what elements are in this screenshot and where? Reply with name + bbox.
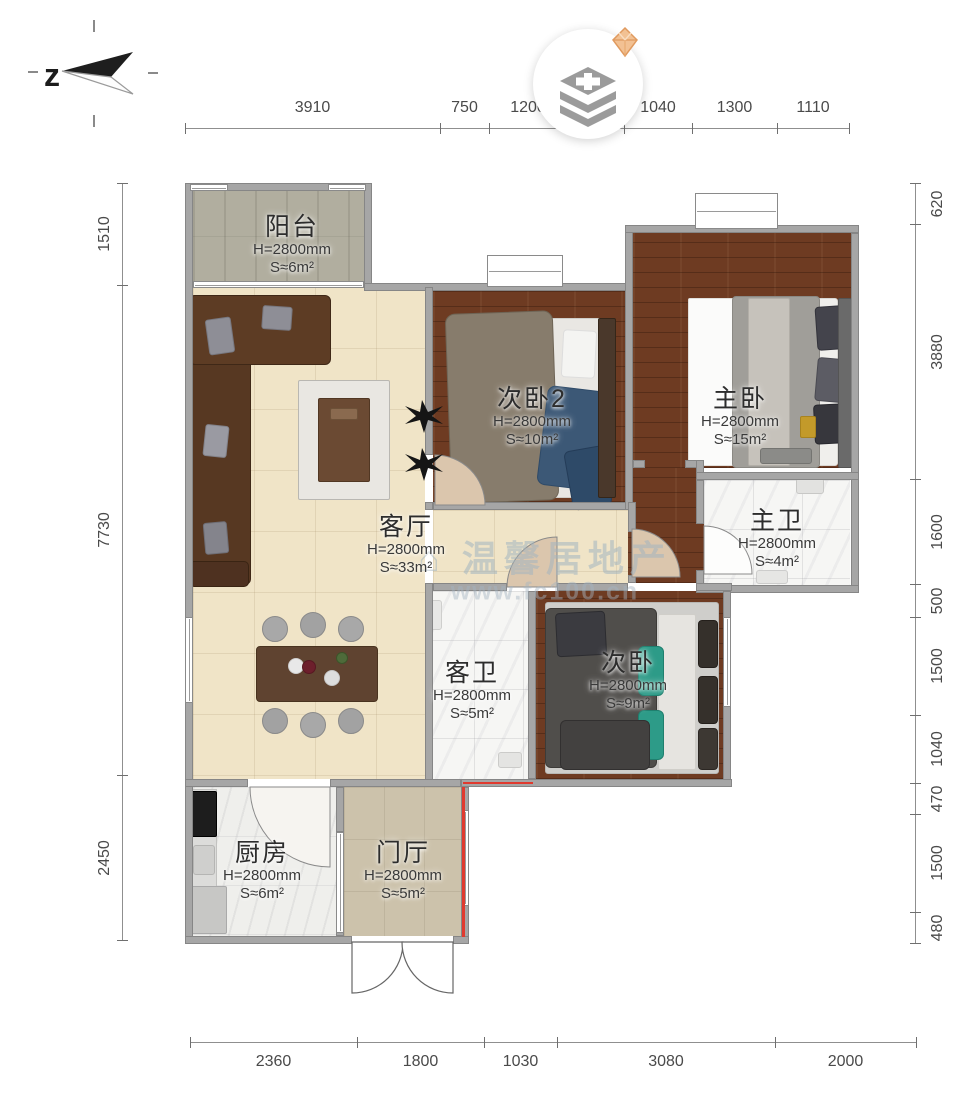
hallway-floor — [628, 468, 704, 583]
window — [328, 184, 366, 191]
dimension-label-left: 7730 — [96, 512, 114, 548]
room-label-guest-bath: 客卫H=2800mmS≈5m² — [433, 660, 511, 723]
diamond-gem-icon — [613, 28, 637, 56]
wall — [425, 502, 433, 510]
compass-letter: z — [44, 57, 60, 93]
room-label-master-bath: 主卫H=2800mmS≈4m² — [738, 508, 816, 571]
dimension-line-bottom — [190, 1042, 916, 1043]
room-label-kitchen: 厨房H=2800mmS≈6m² — [223, 840, 301, 903]
room-name: 次卧2 — [493, 386, 571, 413]
room-area: S≈15m² — [701, 431, 779, 449]
room-name: 客卫 — [433, 660, 511, 687]
dimension-label-right: 1040 — [929, 731, 947, 767]
wall — [364, 183, 372, 289]
dimension-label-top: 1300 — [717, 99, 753, 117]
room-name: 次卧 — [589, 650, 667, 677]
room-height: H=2800mm — [367, 541, 445, 559]
room-name: 门厅 — [364, 840, 442, 867]
dimension-tick — [117, 285, 128, 286]
room-area: S≈5m² — [433, 705, 511, 723]
entry-highlight-line — [462, 787, 465, 937]
room-name: 厨房 — [223, 840, 301, 867]
coffee-table-decor — [330, 408, 358, 420]
corridor-floor — [433, 510, 632, 583]
room-area: S≈4m² — [738, 553, 816, 571]
plate — [324, 670, 340, 686]
floorplan-canvas: 阳台H=2800mmS≈6m²次卧2H=2800mmS≈10m²主卧H=2800… — [0, 0, 974, 1105]
dimension-label-bottom: 3080 — [648, 1053, 684, 1071]
dining-chair — [300, 712, 326, 738]
dimension-tick — [777, 123, 778, 134]
sofa-pillow — [202, 424, 229, 458]
wall — [628, 502, 636, 532]
room-area: S≈33m² — [367, 559, 445, 577]
dimension-tick — [557, 1037, 558, 1048]
room-name: 阳台 — [253, 214, 331, 241]
window — [190, 184, 228, 191]
dimension-tick — [849, 123, 850, 134]
wall — [696, 583, 732, 591]
dining-chair — [262, 616, 288, 642]
dimension-label-right: 1500 — [929, 648, 947, 684]
wall — [433, 502, 636, 510]
room-area: S≈6m² — [253, 259, 331, 277]
dining-chair — [338, 616, 364, 642]
dimension-label-top: 3910 — [295, 99, 331, 117]
master-headboard — [838, 298, 852, 468]
dimension-tick — [692, 123, 693, 134]
wall — [433, 583, 507, 591]
dimension-tick — [910, 912, 921, 913]
room-height: H=2800mm — [738, 535, 816, 553]
bed2-headboard — [598, 318, 616, 498]
window — [487, 255, 563, 287]
dimension-tick — [910, 584, 921, 585]
room-area: S≈6m² — [223, 885, 301, 903]
room-area: S≈10m² — [493, 431, 571, 449]
window — [336, 832, 344, 933]
sofa-pillow — [205, 316, 236, 355]
wall — [453, 936, 469, 944]
dining-chair — [300, 612, 326, 638]
wall — [625, 225, 633, 510]
entrance-door-right — [402, 942, 453, 993]
dimension-label-bottom: 1030 — [503, 1053, 539, 1071]
window — [185, 617, 193, 703]
window — [193, 281, 364, 288]
kitchen-fridge — [191, 886, 227, 934]
entrance-threshold — [352, 936, 453, 946]
room-height: H=2800mm — [223, 867, 301, 885]
wall — [185, 183, 193, 944]
room-height: H=2800mm — [253, 241, 331, 259]
wall — [185, 779, 248, 787]
dimension-label-top: 1110 — [796, 99, 829, 117]
dimension-label-right: 500 — [929, 587, 947, 614]
room-label-balcony: 阳台H=2800mmS≈6m² — [253, 214, 331, 277]
dimension-tick — [117, 183, 128, 184]
room-area: S≈9m² — [589, 695, 667, 713]
dining-chair — [262, 708, 288, 734]
window — [695, 193, 778, 229]
guest-bath-toilet — [498, 752, 522, 768]
sofa-pillow — [203, 521, 230, 555]
dimension-label-bottom: 2360 — [256, 1053, 292, 1071]
dimension-tick — [910, 479, 921, 480]
dimension-tick — [910, 617, 921, 618]
wall — [696, 480, 704, 524]
room-height: H=2800mm — [433, 687, 511, 705]
dimension-line-left — [122, 183, 123, 940]
dimension-label-right: 1600 — [929, 514, 947, 550]
dimension-tick — [910, 224, 921, 225]
dimension-tick — [484, 1037, 485, 1048]
dimension-label-right: 3880 — [929, 334, 947, 370]
dimension-label-bottom: 2000 — [828, 1053, 864, 1071]
dimension-line-top — [185, 128, 849, 129]
window — [723, 617, 731, 707]
room-name: 主卧 — [701, 386, 779, 413]
dimension-tick — [357, 1037, 358, 1048]
dimension-label-right: 1500 — [929, 845, 947, 881]
dining-table — [256, 646, 378, 702]
dimension-tick — [489, 123, 490, 134]
master-bath-toilet — [796, 478, 824, 494]
dimension-tick — [775, 1037, 776, 1048]
bed2-pillow — [561, 329, 597, 379]
master-bath-sink — [756, 570, 788, 584]
room-label-master-bedroom: 主卧H=2800mmS≈15m² — [701, 386, 779, 449]
dimension-tick — [117, 940, 128, 941]
wall — [557, 583, 628, 591]
wall — [696, 472, 859, 480]
dimension-label-top: 750 — [451, 99, 478, 117]
wall — [425, 287, 433, 455]
plant-decor — [336, 652, 348, 664]
compass-icon: z — [18, 14, 188, 139]
wall — [425, 583, 433, 787]
kitchen-stove — [191, 791, 217, 837]
dimension-tick — [910, 715, 921, 716]
sofa-armrest — [189, 561, 249, 587]
room-name: 客厅 — [367, 514, 445, 541]
bed3-dark-pillow — [698, 676, 718, 724]
wall — [633, 460, 645, 468]
room-label-bedroom2: 次卧2H=2800mmS≈10m² — [493, 386, 571, 449]
layers-badge-button[interactable] — [533, 29, 643, 139]
master-bench — [760, 448, 812, 464]
bed3-dark-pillow — [698, 728, 718, 770]
dimension-label-right: 470 — [929, 785, 947, 812]
dimension-tick — [910, 783, 921, 784]
entrance-door-left — [352, 942, 403, 993]
room-name: 主卫 — [738, 508, 816, 535]
room-height: H=2800mm — [701, 413, 779, 431]
master-decor — [800, 416, 816, 438]
sofa-pillow — [261, 305, 293, 331]
wall — [185, 936, 352, 944]
bed3-dark-pillow — [698, 620, 718, 668]
bed3-blanket-end — [560, 720, 650, 770]
dining-chair — [338, 708, 364, 734]
dimension-tick — [910, 183, 921, 184]
dimension-label-top: 1040 — [640, 99, 676, 117]
dimension-label-right: 480 — [929, 914, 947, 941]
room-height: H=2800mm — [493, 413, 571, 431]
room-label-bedroom3: 次卧H=2800mmS≈9m² — [589, 650, 667, 713]
wine-decor — [302, 660, 316, 674]
room-label-foyer: 门厅H=2800mmS≈5m² — [364, 840, 442, 903]
room-label-living-room: 客厅H=2800mmS≈33m² — [367, 514, 445, 577]
kitchen-sink — [193, 845, 215, 875]
dimension-line-right — [915, 183, 916, 943]
wall — [330, 779, 461, 787]
room-area: S≈5m² — [364, 885, 442, 903]
wall — [528, 591, 536, 779]
wall — [851, 233, 859, 593]
dimension-label-right: 620 — [929, 190, 947, 217]
room-height: H=2800mm — [589, 677, 667, 695]
dimension-tick — [910, 814, 921, 815]
dimension-tick — [910, 943, 921, 944]
dimension-label-bottom: 1800 — [403, 1053, 439, 1071]
dimension-tick — [117, 775, 128, 776]
layers-plus-icon — [560, 67, 616, 127]
dimension-tick — [190, 1037, 191, 1048]
room-height: H=2800mm — [364, 867, 442, 885]
dimension-label-left: 2450 — [96, 840, 114, 876]
wall — [336, 787, 344, 832]
entry-highlight-line — [463, 782, 533, 784]
dimension-tick — [916, 1037, 917, 1048]
dimension-label-left: 1510 — [96, 216, 114, 252]
dimension-tick — [440, 123, 441, 134]
wall — [628, 575, 636, 583]
